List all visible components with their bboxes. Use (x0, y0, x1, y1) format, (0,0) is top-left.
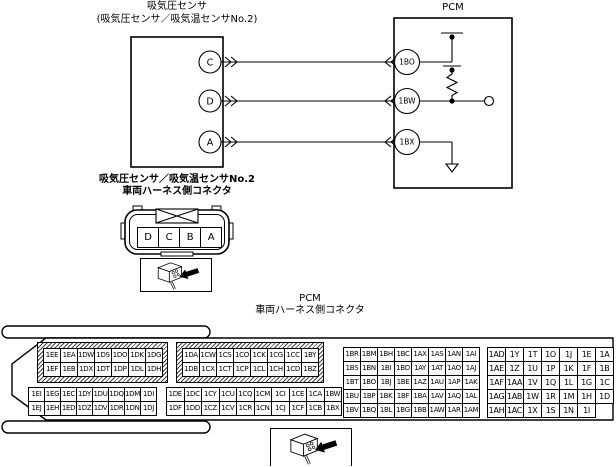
pin-B: B (179, 227, 201, 248)
pin-1CB: 1CB (306, 401, 325, 416)
pcm-terminal-1bw-label: 1BW (398, 97, 416, 106)
pin-1D: 1D (595, 389, 614, 404)
pin-1EH: 1EH (44, 401, 61, 416)
pin-1EE: 1EE (43, 348, 61, 363)
pin-1S: 1S (541, 403, 560, 418)
pin-1BE: 1BE (394, 375, 412, 390)
pin-1BZ: 1BZ (301, 362, 319, 377)
pin-row: 1AG1AB1W1R1M1H1D (487, 389, 613, 404)
connector-rail-top (2, 326, 210, 338)
pin-1EB: 1EB (60, 362, 78, 377)
pin-1G: 1G (577, 375, 596, 390)
pin-1BP: 1BP (360, 389, 378, 404)
pin-row: 1EI1EG1EC1DY1DU1DQ1DM1DI (28, 387, 156, 402)
pin-row: 1EE1EA1DW1DS1DO1DK1DG (43, 348, 162, 363)
pin-1CY: 1CY (201, 387, 220, 402)
pin-1Q: 1Q (541, 375, 560, 390)
pcm-pin-group-bottom-left: 1EI1EG1EC1DY1DU1DQ1DM1DI1EJ1EH1ED1DZ1DV1… (28, 387, 156, 416)
pin-1P: 1P (541, 361, 560, 376)
pin-1AA: 1AA (505, 375, 524, 390)
pin-1CJ: 1CJ (271, 401, 290, 416)
pin-1DV: 1DV (92, 401, 109, 416)
pcm-internal-circuit (420, 33, 494, 172)
pin-1CG: 1CG (267, 348, 285, 363)
harness-side-view-box (140, 258, 212, 292)
pin-1B: 1B (595, 361, 614, 376)
pin-row: 1EJ1EH1ED1DZ1DV1DR1DN1DJ (28, 401, 156, 416)
pin-1T: 1T (523, 347, 542, 362)
pin-1O: 1O (541, 347, 560, 362)
pin-1AS: 1AS (428, 347, 446, 362)
pin-row: 1AH1AC1X1S1N1I (487, 403, 613, 418)
pin-1DH: 1DH (145, 362, 163, 377)
pin-1BK: 1BK (377, 389, 395, 404)
pin-1BM: 1BM (360, 347, 378, 362)
pin-1BH: 1BH (377, 347, 395, 362)
sensor-terminal-a-label: A (207, 138, 214, 149)
pin-1DZ: 1DZ (76, 401, 93, 416)
pin-1DD: 1DD (184, 401, 203, 416)
pin-row: 1BV1BQ1BL1BG1BB1AW1AR1AM (343, 403, 479, 418)
pin-1CX: 1CX (199, 362, 217, 377)
pin-1DO: 1DO (111, 348, 129, 363)
pin-1EJ: 1EJ (28, 401, 45, 416)
sensor-connector-pin-grid: DCBA (137, 227, 221, 248)
pin-1DX: 1DX (77, 362, 95, 377)
pin-1BX: 1BX (324, 401, 343, 416)
pin-1DA: 1DA (182, 348, 200, 363)
pin-1R: 1R (541, 389, 560, 404)
pin-row: 1AF1AA1V1Q1L1G1C (487, 375, 613, 390)
pin-1AY: 1AY (411, 361, 429, 376)
pin-1BO: 1BO (360, 375, 378, 390)
pin-row: 1DE1DC1CY1CU1CQ1CM1CI1CE1CA1BW (166, 387, 341, 402)
pin-1AI: 1AI (462, 347, 480, 362)
pin-1EF: 1EF (43, 362, 61, 377)
pcm-terminal-1bx-label: 1BX (399, 138, 414, 147)
pin-1DB: 1DB (182, 362, 200, 377)
pin-1AV: 1AV (428, 389, 446, 404)
pin-1BU: 1BU (343, 389, 361, 404)
pin-1X: 1X (523, 403, 542, 418)
pin-1N: 1N (559, 403, 578, 418)
pin-row: 1BS1BN1BI1BD1AY1AT1AO1AJ (343, 361, 479, 376)
pin-1AK: 1AK (462, 375, 480, 390)
sensor-connector-label-line1: 吸気圧センサ／吸気温センサNo.2 (57, 174, 297, 186)
connector-bottom-lip (161, 252, 193, 256)
pin-1AZ: 1AZ (411, 375, 429, 390)
pin-1AR: 1AR (445, 403, 463, 418)
pin-1AP: 1AP (445, 375, 463, 390)
ground-icon (446, 164, 458, 172)
pin-1DP: 1DP (111, 362, 129, 377)
pin-row: 1DA1CW1CS1CO1CK1CG1CC1BY (182, 348, 318, 363)
pin-1CS: 1CS (216, 348, 234, 363)
pin-1CL: 1CL (250, 362, 268, 377)
pin-1C: 1C (595, 375, 614, 390)
schematic-svg: C D A 1BO 1BW 1BX (0, 0, 616, 200)
pin-1AF: 1AF (487, 375, 506, 390)
pin-1BJ: 1BJ (377, 375, 395, 390)
pin-1AU: 1AU (428, 375, 446, 390)
pin-1BS: 1BS (343, 361, 361, 376)
pin-1CV: 1CV (219, 401, 238, 416)
pin-row: 1BT1BO1BJ1BE1AZ1AU1AP1AK (343, 375, 479, 390)
pin-1CN: 1CN (254, 401, 273, 416)
pin-1CM: 1CM (254, 387, 273, 402)
pin-1CF: 1CF (289, 401, 308, 416)
pin-1W: 1W (523, 389, 542, 404)
pin-1DL: 1DL (128, 362, 146, 377)
pin-1DM: 1DM (124, 387, 141, 402)
pin-1DF: 1DF (166, 401, 185, 416)
pin-1BI: 1BI (377, 361, 395, 376)
pin-1AX: 1AX (411, 347, 429, 362)
pin-A: A (200, 227, 222, 248)
pin-1BR: 1BR (343, 347, 361, 362)
connector-keying-bowtie-icon (156, 209, 198, 223)
pin-1DR: 1DR (108, 401, 125, 416)
pin-row: 1BU1BP1BK1BF1BA1AV1AQ1AL (343, 389, 479, 404)
sensor-side-connector-chevrons-icon (225, 57, 237, 147)
pin-1BB: 1BB (411, 403, 429, 418)
pin-row: 1EF1EB1DX1DT1DP1DL1DH (43, 362, 162, 377)
pin-1AC: 1AC (505, 403, 524, 418)
pin-1CQ: 1CQ (236, 387, 255, 402)
pin-1CI: 1CI (271, 387, 290, 402)
pin-1AW: 1AW (428, 403, 446, 418)
pcm-connector-label-line2: 車両ハーネス側コネクタ (210, 305, 410, 317)
pcm-terminal-1bo-label: 1BO (399, 58, 415, 67)
pin-1DN: 1DN (124, 401, 141, 416)
pin-1CW: 1CW (199, 348, 217, 363)
pin-1CA: 1CA (306, 387, 325, 402)
pcm-pin-group-top-left-frame: 1EE1EA1DW1DS1DO1DK1DG1EF1EB1DX1DT1DP1DL1… (37, 342, 168, 383)
pin-1BC: 1BC (394, 347, 412, 362)
pin-1AQ: 1AQ (445, 389, 463, 404)
pin-1EG: 1EG (44, 387, 61, 402)
pin-1L: 1L (559, 375, 578, 390)
pin-1CC: 1CC (284, 348, 302, 363)
pin-1AL: 1AL (462, 389, 480, 404)
pcm-pin-group-right-outer: 1AD1Y1T1O1J1E1A1AE1Z1U1P1K1F1B1AF1AA1V1Q… (487, 347, 613, 418)
pin-1AN: 1AN (445, 347, 463, 362)
pin-1M: 1M (559, 389, 578, 404)
wiring-diagram-page: 吸気圧センサ (吸気圧センサ／吸気温センサNo.2) PCM C D A (0, 0, 616, 467)
pin-1EC: 1EC (60, 387, 77, 402)
pin-1CR: 1CR (236, 401, 255, 416)
pin-1DC: 1DC (184, 387, 203, 402)
junction-dot (449, 34, 454, 39)
pin-1AM: 1AM (462, 403, 480, 418)
pin-1Y: 1Y (505, 347, 524, 362)
pin-1DW: 1DW (77, 348, 95, 363)
pin-1BL: 1BL (377, 403, 395, 418)
pin-1BG: 1BG (394, 403, 412, 418)
pcm-pin-group-bottom-middle: 1DE1DC1CY1CU1CQ1CM1CI1CE1CA1BW1DF1DD1CZ1… (166, 387, 341, 416)
pin-1CU: 1CU (219, 387, 238, 402)
pin-row: 1DB1CX1CT1CP1CL1CH1CD1BZ (182, 362, 318, 377)
pin-1CT: 1CT (216, 362, 234, 377)
sensor-terminal-c-label: C (207, 58, 214, 69)
pin-1AG: 1AG (487, 389, 506, 404)
pin-1AE: 1AE (487, 361, 506, 376)
pin-1DT: 1DT (94, 362, 112, 377)
pcm-pin-group-top-middle-frame: 1DA1CW1CS1CO1CK1CG1CC1BY1DB1CX1CT1CP1CL1… (176, 342, 324, 383)
pin-1F: 1F (577, 361, 596, 376)
pin-1BY: 1BY (301, 348, 319, 363)
pin-1AB: 1AB (505, 389, 524, 404)
pin-1DJ: 1DJ (140, 401, 157, 416)
pin-1BD: 1BD (394, 361, 412, 376)
pin-row: 1DF1DD1CZ1CV1CR1CN1CJ1CF1CB1BX (166, 401, 341, 416)
pin-1CE: 1CE (289, 387, 308, 402)
harness-side-view-box (270, 428, 352, 466)
pin-1ED: 1ED (60, 401, 77, 416)
pin-1BV: 1BV (343, 403, 361, 418)
pin-1DG: 1DG (145, 348, 163, 363)
pin-D: D (137, 227, 159, 248)
pin-1AT: 1AT (428, 361, 446, 376)
pin-1BA: 1BA (411, 389, 429, 404)
pin-C: C (158, 227, 180, 248)
sensor-connector-label-line2: 車両ハーネス側コネクタ (57, 186, 297, 198)
pin-1DY: 1DY (76, 387, 93, 402)
pin-1CO: 1CO (233, 348, 251, 363)
pin-1BF: 1BF (394, 389, 412, 404)
pin-1DE: 1DE (166, 387, 185, 402)
pin-1DK: 1DK (128, 348, 146, 363)
pin-1H: 1H (577, 389, 596, 404)
pin-row: 1AE1Z1U1P1K1F1B (487, 361, 613, 376)
pin-1E: 1E (577, 347, 596, 362)
pin-1BN: 1BN (360, 361, 378, 376)
pin-1CK: 1CK (250, 348, 268, 363)
pin-1AH: 1AH (487, 403, 506, 418)
pin-1BQ: 1BQ (360, 403, 378, 418)
pin-row: DCBA (137, 227, 221, 248)
pcm-pin-group-top-left: 1EE1EA1DW1DS1DO1DK1DG1EF1EB1DX1DT1DP1DL1… (43, 348, 162, 377)
pin-1AO: 1AO (445, 361, 463, 376)
pin-1A: 1A (595, 347, 614, 362)
pin-1K: 1K (559, 361, 578, 376)
pin-row: 1BR1BM1BH1BC1AX1AS1AN1AI (343, 347, 479, 362)
pin-1CP: 1CP (233, 362, 251, 377)
sensor-terminal-d-label: D (206, 97, 213, 108)
pin-1CH: 1CH (267, 362, 285, 377)
pin-1BW: 1BW (324, 387, 343, 402)
pcm-pin-group-right-inner: 1BR1BM1BH1BC1AX1AS1AN1AI1BS1BN1BI1BD1AY1… (343, 347, 479, 418)
pin-1EA: 1EA (60, 348, 78, 363)
plug-with-arrow-icon (276, 431, 346, 465)
pin-1EI: 1EI (28, 387, 45, 402)
pin-1U: 1U (523, 361, 542, 376)
pin-1AD: 1AD (487, 347, 506, 362)
open-terminal-icon (485, 97, 494, 106)
pin-1DI: 1DI (140, 387, 157, 402)
pin-1DS: 1DS (94, 348, 112, 363)
pin-1CZ: 1CZ (201, 401, 220, 416)
pin-row: 1AD1Y1T1O1J1E1A (487, 347, 613, 362)
pin-1V: 1V (523, 375, 542, 390)
junction-dot (449, 98, 454, 103)
pin-1I: 1I (577, 403, 596, 418)
pin-1DQ: 1DQ (108, 387, 125, 402)
plug-with-arrow-icon (143, 260, 209, 290)
pin-1CD: 1CD (284, 362, 302, 377)
resistor-icon (447, 74, 457, 101)
pcm-pin-group-top-middle: 1DA1CW1CS1CO1CK1CG1CC1BY1DB1CX1CT1CP1CL1… (182, 348, 318, 377)
pcm-connector-label-line1: PCM (210, 293, 410, 305)
pin-1AJ: 1AJ (462, 361, 480, 376)
pin-1DU: 1DU (92, 387, 109, 402)
pin-1Z: 1Z (505, 361, 524, 376)
pin-1BT: 1BT (343, 375, 361, 390)
connector-rail-bottom (2, 421, 210, 433)
pin-1J: 1J (559, 347, 578, 362)
